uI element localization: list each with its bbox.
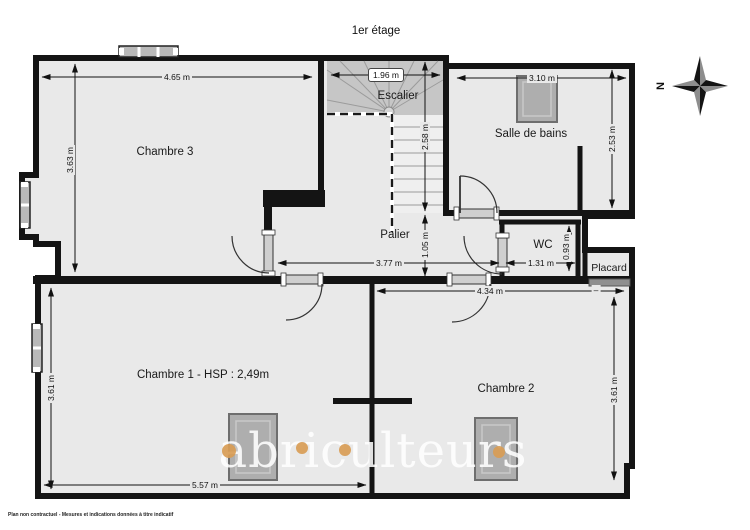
dim-label-sdb-height: 2.53 m [607, 124, 617, 154]
room-label-chambre3: Chambre 3 [137, 146, 194, 158]
watermark-dot-icon [339, 444, 351, 456]
room-label-escalier: Escalier [378, 90, 419, 102]
room-label-wc: WC [533, 239, 552, 251]
dim-label-chambre2-height: 3.61 m [609, 375, 619, 405]
room-label-chambre2: Chambre 2 [478, 383, 535, 395]
dim-label-chambre3-height: 3.63 m [65, 145, 75, 175]
dim-label-chambre1-height: 3.61 m [46, 373, 56, 403]
dim-label-wc-height: 0.93 m [561, 232, 571, 262]
dim-label-escalier-width: 1.96 m [368, 68, 404, 82]
page-title: 1er étage [352, 25, 401, 37]
dim-label-palier-height: 1.05 m [420, 230, 430, 260]
room-label-salle-de-bains: Salle de bains [495, 128, 567, 140]
dim-label-placard-width: – [592, 285, 601, 295]
watermark-logo: abriculteurs [219, 423, 528, 479]
dim-label-chambre3-width: 4.65 m [162, 72, 192, 82]
dim-label-chambre2-width: 4.34 m [475, 286, 505, 296]
floor-plan-page: 1er étage Chambre 3 Escalier Salle de ba… [0, 0, 750, 530]
wall-chambre3-jog [263, 190, 325, 207]
room-label-placard: Placard [591, 262, 627, 274]
compass-north-label: N [655, 82, 667, 90]
dim-label-sdb-width: 3.10 m [527, 73, 557, 83]
dim-label-chambre1-width: 5.57 m [190, 480, 220, 490]
watermark-dot-icon [296, 442, 308, 454]
disclaimer-text: Plan non contractuel - Mesures et indica… [8, 512, 173, 518]
dim-label-wc-width: 1.31 m [526, 258, 556, 268]
dim-label-escalier-height: 2.58 m [420, 122, 430, 152]
room-label-chambre1: Chambre 1 - HSP : 2,49m [137, 369, 269, 381]
room-label-palier: Palier [380, 229, 409, 241]
compass-north-icon [672, 56, 728, 116]
watermark-dot-icon [222, 444, 236, 458]
dim-label-palier-width: 3.77 m [374, 258, 404, 268]
chambre3-bay-window [20, 182, 30, 228]
stair-run-area [393, 115, 443, 213]
chambre1-left-window [32, 324, 42, 372]
chambre3-top-window [119, 46, 178, 57]
watermark-dot-icon [493, 446, 505, 458]
